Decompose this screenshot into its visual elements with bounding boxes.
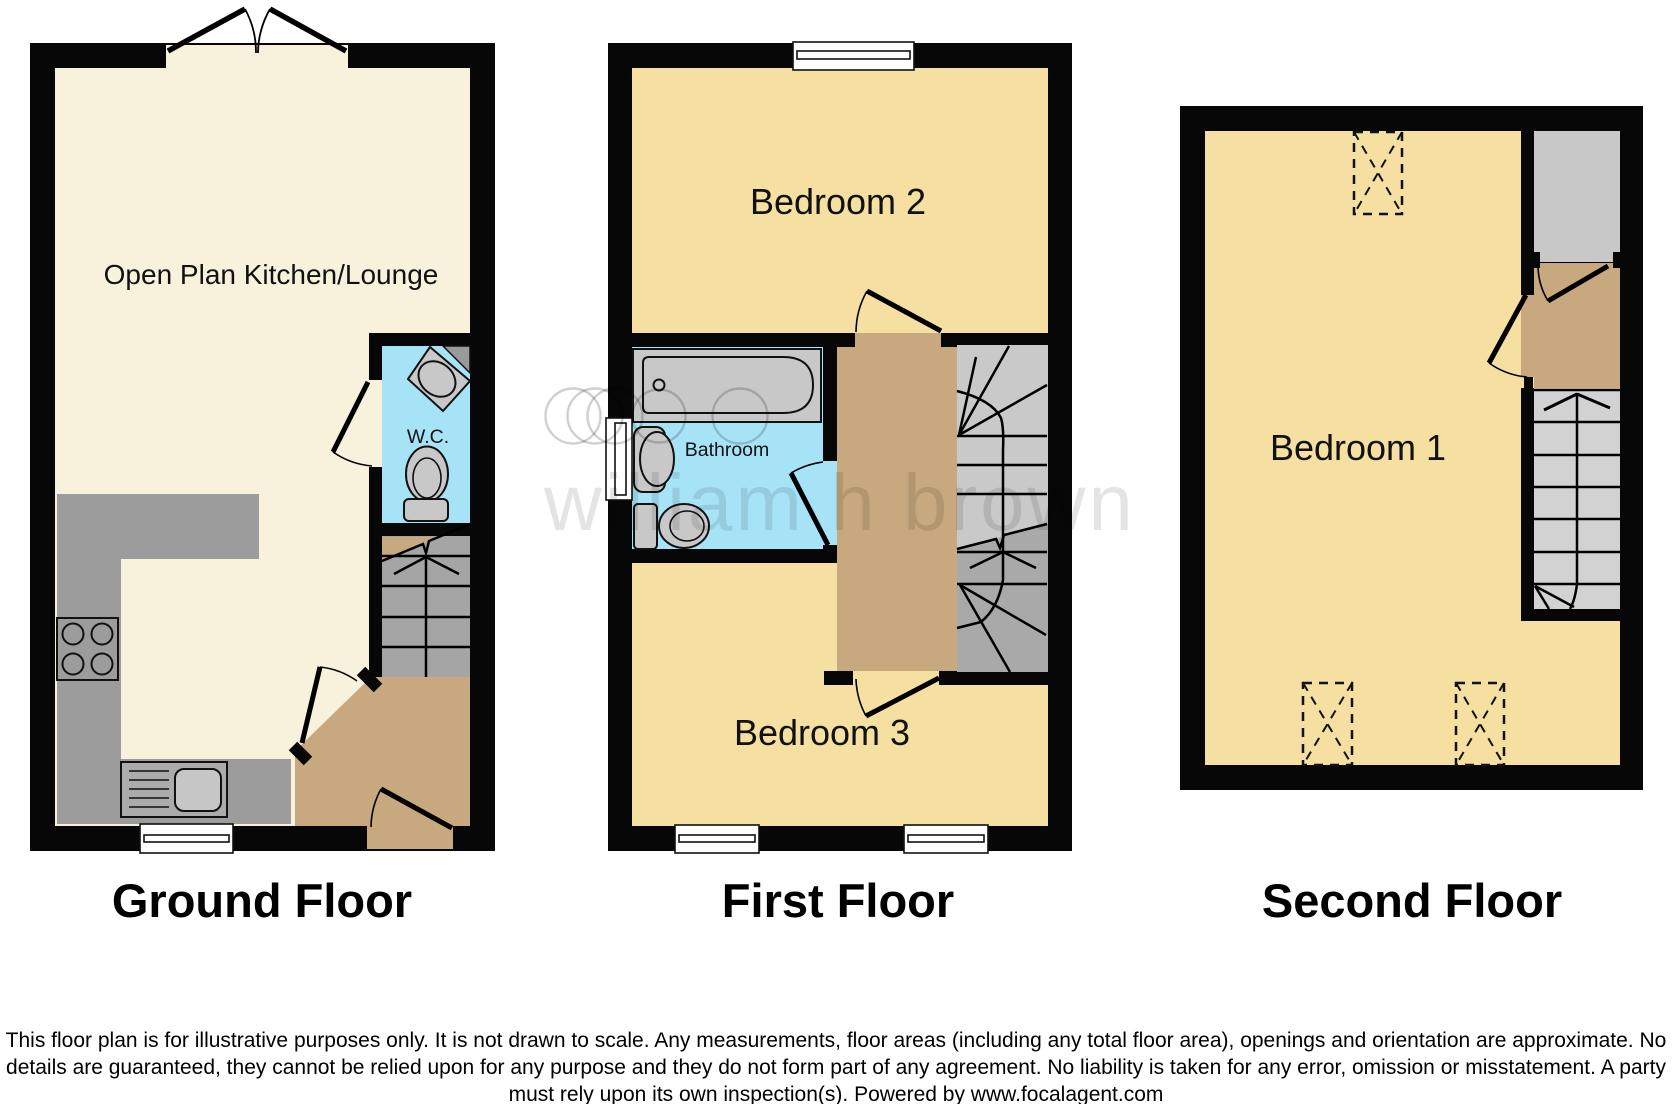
svg-text:First Floor: First Floor (722, 874, 954, 927)
svg-text:W.C.: W.C. (407, 426, 449, 448)
svg-text:Bedroom 3: Bedroom 3 (734, 712, 910, 753)
svg-text:Bedroom 1: Bedroom 1 (1270, 427, 1446, 468)
svg-text:details are guaranteed, they c: details are guaranteed, they cannot be r… (6, 1056, 1666, 1079)
svg-text:This floor plan is for illustr: This floor plan is for illustrative purp… (6, 1029, 1667, 1052)
svg-text:Second Floor: Second Floor (1262, 874, 1562, 927)
svg-text:Open Plan Kitchen/Lounge: Open Plan Kitchen/Lounge (104, 259, 439, 290)
svg-text:Bedroom 2: Bedroom 2 (750, 181, 926, 222)
svg-text:Ground Floor: Ground Floor (112, 874, 412, 927)
svg-text:must rely upon its own inspect: must rely upon its own inspection(s). Po… (509, 1083, 1164, 1104)
svg-text:william h brown: william h brown (543, 458, 1136, 547)
